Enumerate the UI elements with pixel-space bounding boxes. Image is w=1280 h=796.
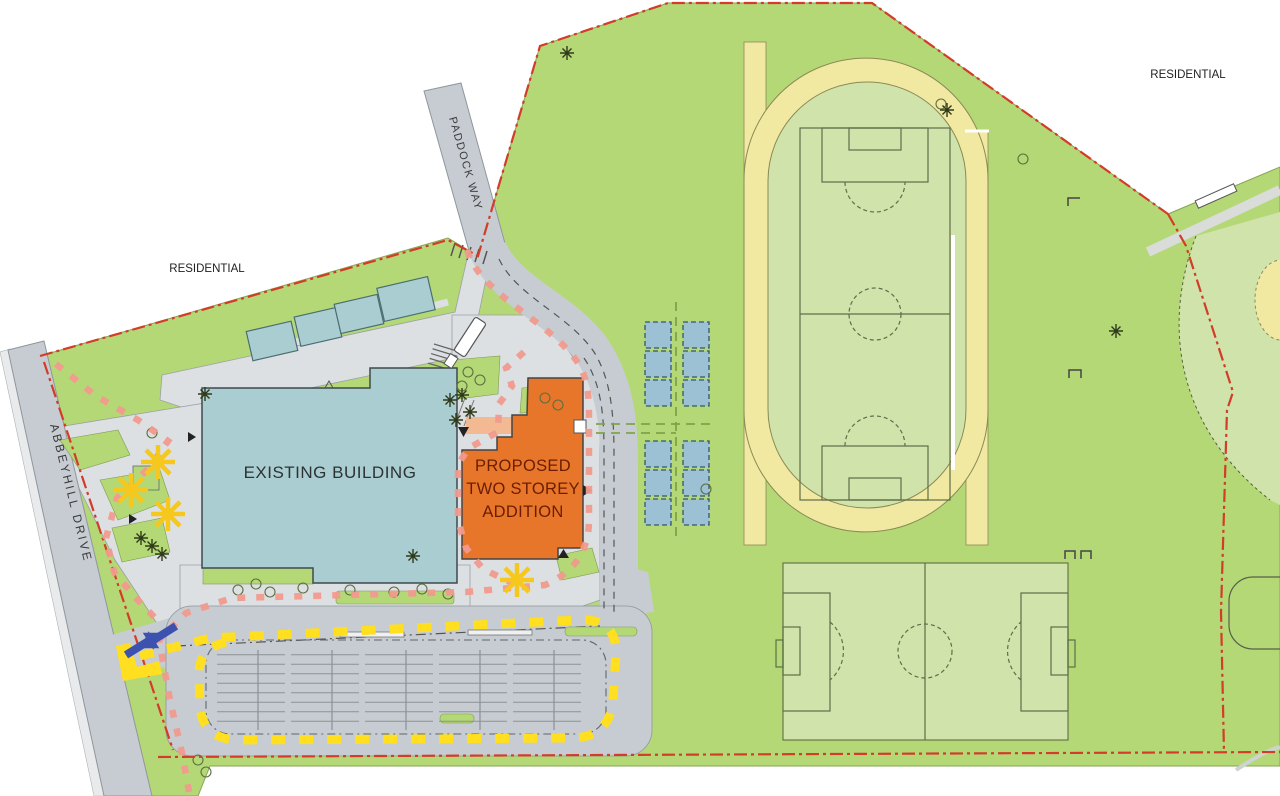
addition-door: [574, 420, 586, 433]
svg-text:ADDITION: ADDITION: [482, 503, 563, 521]
track-infield: [768, 82, 966, 508]
svg-text:TWO STOREY: TWO STOREY: [466, 480, 580, 498]
proposed-addition-label: PROPOSED TWO STOREY ADDITION: [466, 457, 580, 521]
existing-building-label: EXISTING BUILDING: [244, 463, 417, 482]
svg-text:PROPOSED: PROPOSED: [475, 457, 571, 475]
site-plan: EXISTING BUILDING PROPOSED TWO STOREY AD…: [0, 0, 1280, 796]
residential-label-ne: RESIDENTIAL: [1150, 69, 1226, 81]
canopy: [466, 417, 516, 434]
soccer-field: [776, 563, 1075, 740]
existing-building: EXISTING BUILDING: [202, 368, 457, 583]
residential-label-nw: RESIDENTIAL: [169, 263, 245, 275]
running-track: [744, 42, 989, 545]
shelter: [468, 630, 532, 635]
